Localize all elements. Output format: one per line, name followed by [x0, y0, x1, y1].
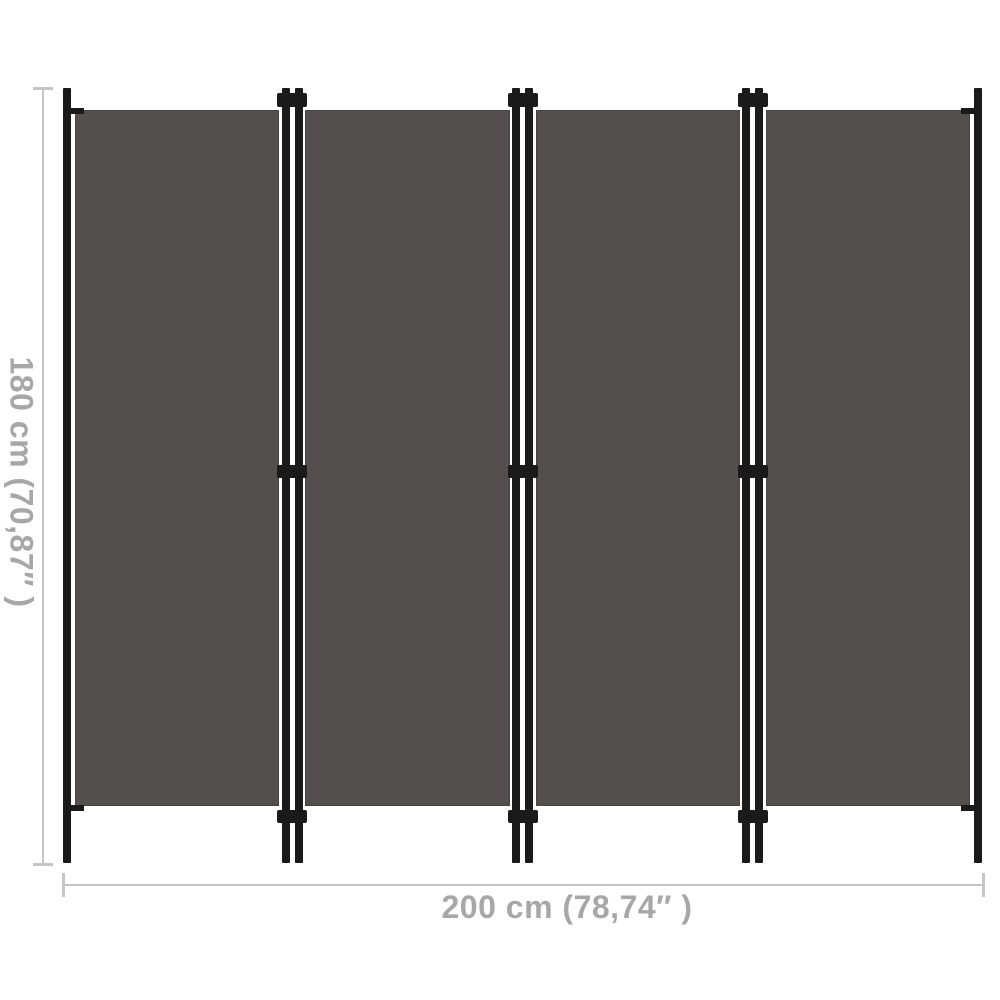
divider-panel-2 — [305, 110, 509, 806]
height-dimension-label: 180 cm (70,87″ ) — [3, 356, 40, 607]
hinge-2 — [510, 88, 536, 863]
hinge-knuckle-top — [508, 93, 538, 107]
hinge-knuckle-middle — [738, 465, 768, 478]
frame-tab — [71, 108, 84, 114]
hinge-knuckle-bottom — [738, 810, 768, 823]
hinge-knuckle-top — [738, 93, 768, 107]
hinge-knuckle-bottom — [277, 810, 307, 823]
frame-tab — [961, 805, 974, 811]
height-dimension-line — [42, 88, 44, 865]
width-dimension-label: 200 cm (78,74″ ) — [441, 889, 692, 926]
hinge-knuckle-bottom — [508, 810, 538, 823]
hinge-knuckle-top — [277, 93, 307, 107]
hinge-3 — [740, 88, 766, 863]
hinge-1 — [279, 88, 305, 863]
product-dimension-diagram: 180 cm (70,87″ ) — [0, 0, 1000, 1000]
hinge-knuckle-middle — [508, 465, 538, 478]
room-divider-screen — [63, 88, 982, 863]
width-dimension-line — [62, 884, 985, 886]
divider-panel-4 — [766, 110, 970, 806]
divider-panel-1 — [75, 110, 279, 806]
frame-post-left — [63, 88, 71, 863]
hinge-knuckle-middle — [277, 465, 307, 478]
frame-post-right — [974, 88, 982, 863]
frame-tab — [961, 108, 974, 114]
frame-tab — [71, 805, 84, 811]
divider-panel-3 — [536, 110, 740, 806]
